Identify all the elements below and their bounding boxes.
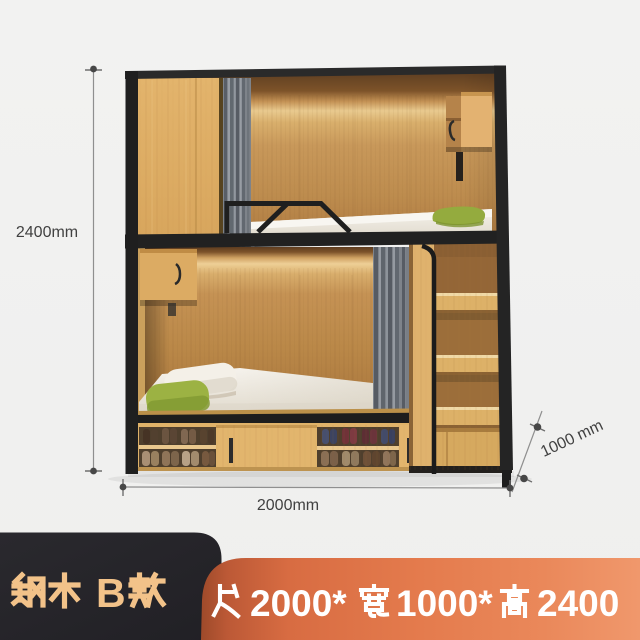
svg-text:2000*: 2000*	[250, 583, 347, 624]
svg-text:B: B	[96, 570, 126, 616]
svg-text:1000*: 1000*	[396, 583, 493, 624]
svg-text:2400: 2400	[537, 583, 619, 624]
svg-text:2400mm: 2400mm	[16, 224, 78, 241]
svg-text:2000mm: 2000mm	[257, 497, 319, 514]
